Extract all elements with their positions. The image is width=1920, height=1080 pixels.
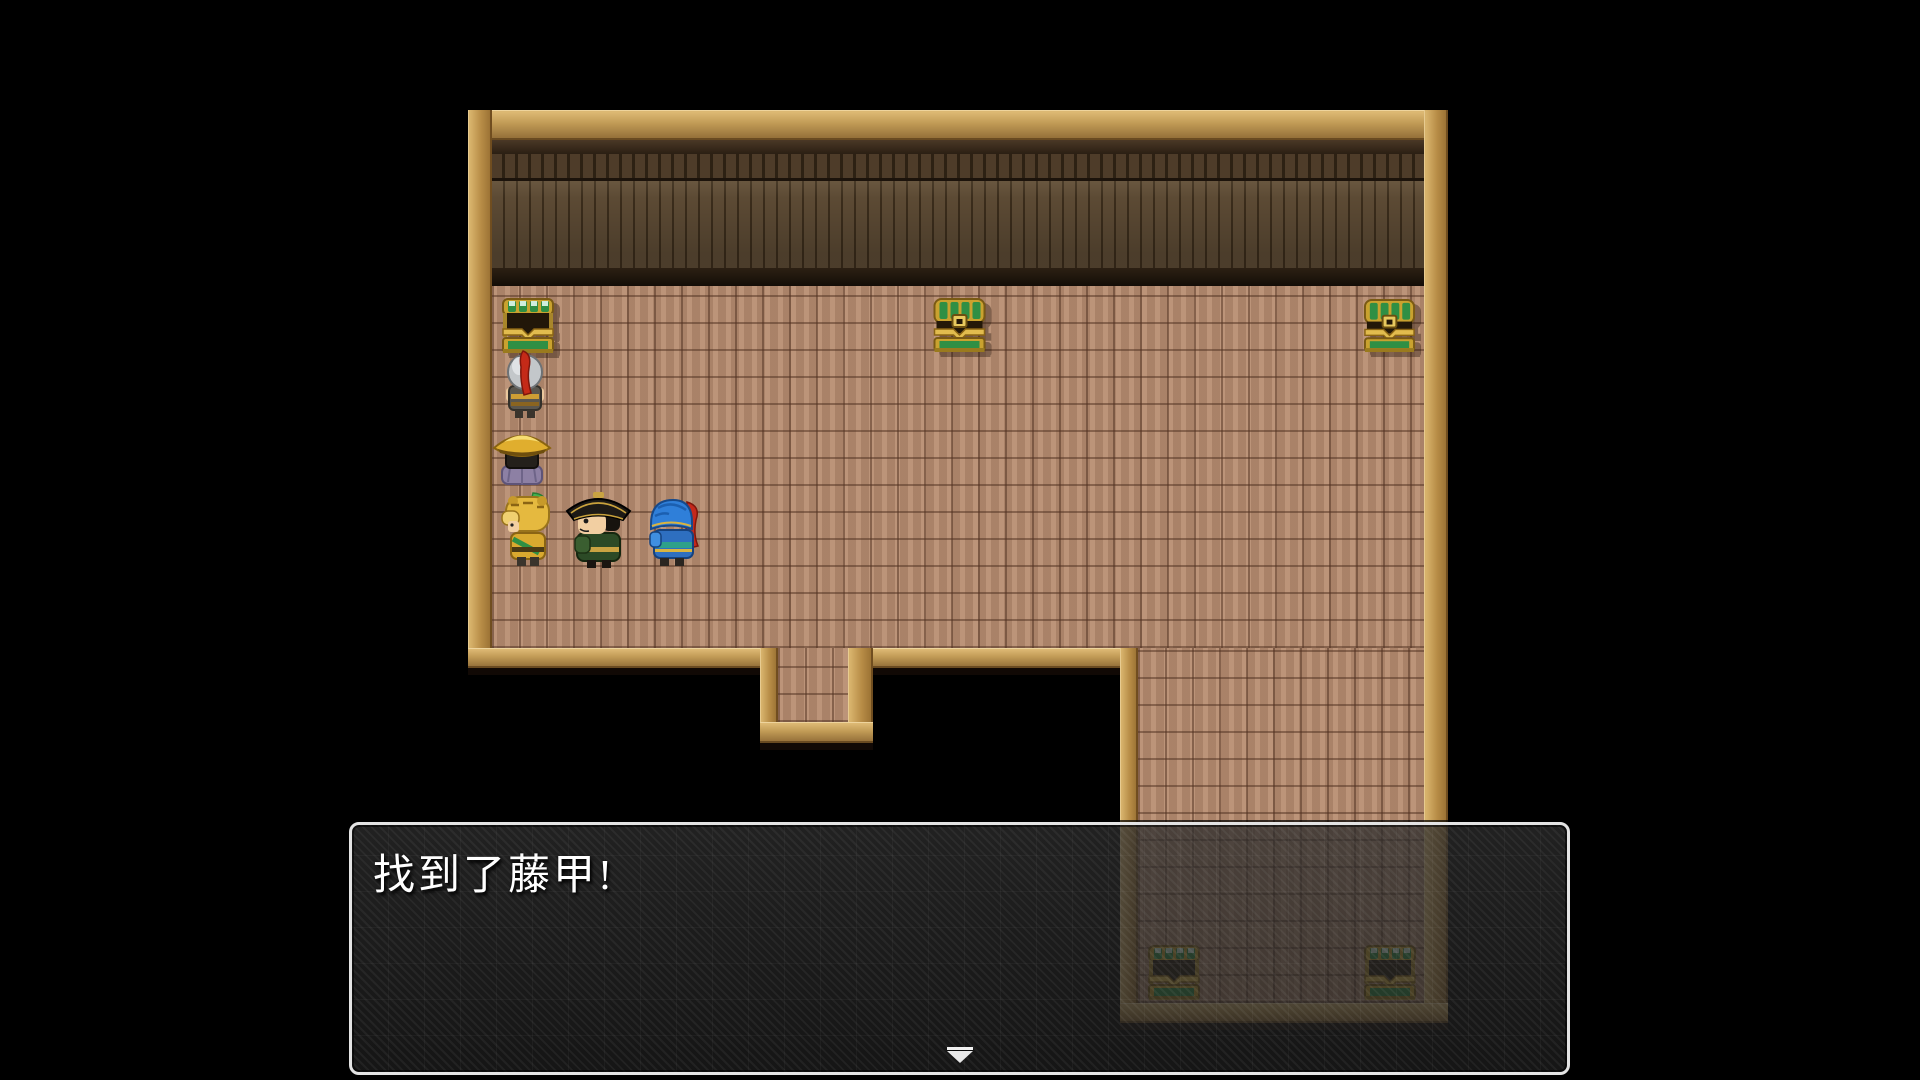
character-gold-hat-scholar	[492, 422, 552, 490]
wall-slat-strip	[492, 154, 1424, 181]
character-gold-tiger-warrior	[499, 491, 556, 569]
character-knight-red-plume	[501, 350, 549, 422]
room-frame-bottom-mid	[873, 648, 1120, 668]
treasure-chest-open-icon[interactable]	[500, 298, 556, 354]
back-wall	[492, 140, 1424, 286]
game-screen[interactable]: 找到了藤甲!	[0, 0, 1920, 1080]
continue-arrow-icon[interactable]	[947, 1047, 973, 1064]
character-black-hat-officer	[563, 489, 634, 569]
message-window[interactable]: 找到了藤甲!	[349, 822, 1570, 1075]
doorway-floor	[778, 648, 848, 722]
character-blue-warrior	[641, 496, 705, 569]
room-frame-bottom-left	[468, 648, 760, 668]
continue-arrow-triangle	[947, 1051, 973, 1063]
continue-arrow-bar	[947, 1047, 973, 1050]
doorway-frame-bottom	[760, 722, 873, 743]
wall-planks	[492, 181, 1424, 268]
room-frame-top	[468, 110, 1448, 140]
treasure-chest-closed-icon[interactable]	[931, 297, 988, 353]
treasure-chest-closed-icon[interactable]	[1361, 298, 1418, 353]
message-text: 找到了藤甲!	[373, 841, 615, 902]
wall-top-board	[492, 140, 1424, 154]
room-frame-left	[468, 110, 492, 668]
wall-bottom-trim	[492, 268, 1424, 286]
